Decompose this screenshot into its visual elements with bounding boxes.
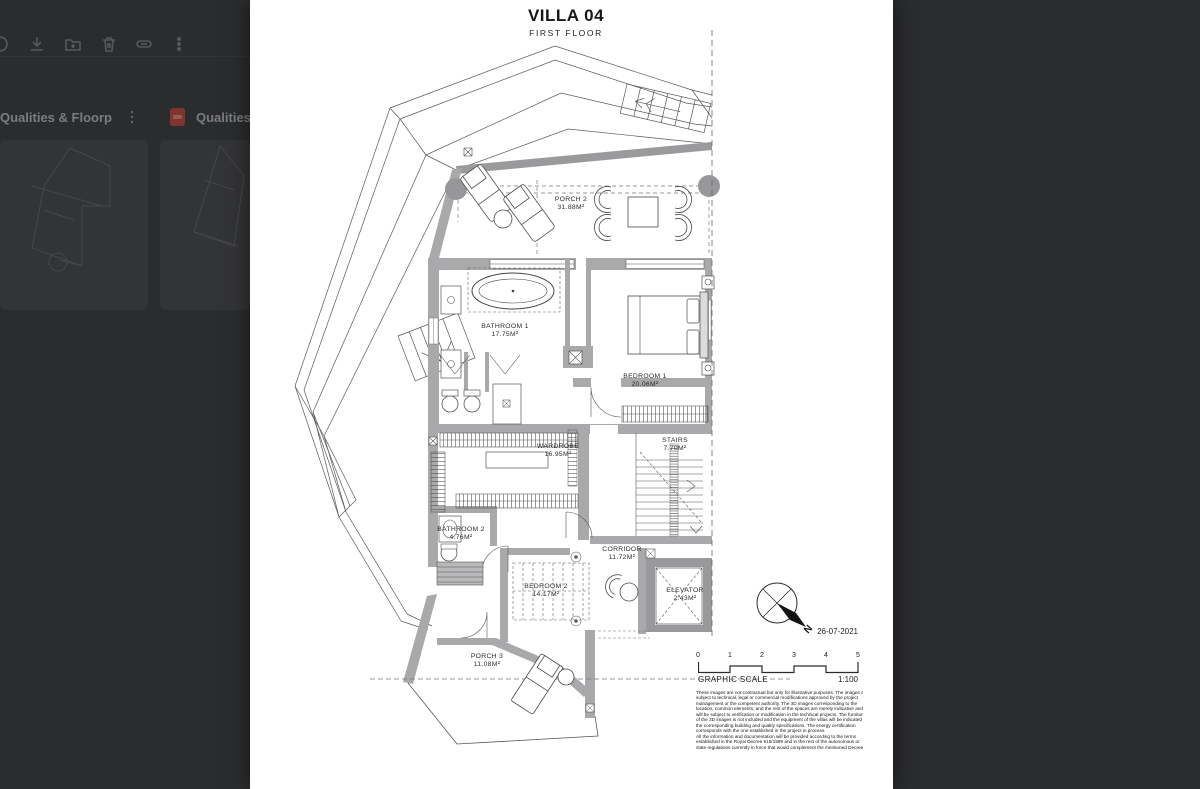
add-to-folder-button[interactable] xyxy=(63,34,83,54)
more-options-button[interactable] xyxy=(169,34,189,54)
room-label-bedroom1: BEDROOM 120.06M² xyxy=(597,373,693,389)
file-card-thumbnail[interactable] xyxy=(0,140,148,310)
download-button[interactable] xyxy=(27,34,47,54)
more-options-icon xyxy=(169,34,189,54)
plan-date: 26-07-2021 xyxy=(698,627,858,636)
scale-bar xyxy=(698,661,859,674)
room-label-corridor: CORRIDOR11.72M² xyxy=(574,546,670,562)
file-card-title[interactable]: Qualities & Floorpla... xyxy=(196,110,250,125)
scale-tick: 4 xyxy=(819,652,833,659)
scale-label: GRAPHIC SCALE xyxy=(698,675,768,684)
room-label-porch2: PORCH 231.88M² xyxy=(523,196,619,212)
room-label-bathroom1: BATHROOM 117.75M² xyxy=(457,323,553,339)
kebab-icon xyxy=(123,108,141,126)
scale-tick: 1 xyxy=(723,652,737,659)
column xyxy=(698,175,720,197)
add-to-folder-icon xyxy=(63,34,83,54)
scale-tick: 0 xyxy=(691,652,705,659)
room-label-porch3: PORCH 311.08M² xyxy=(439,653,535,669)
document-page: VILLA 04 FIRST FLOOR xyxy=(250,0,893,789)
room-label-wardrobe: WARDROBE16.95M² xyxy=(510,443,606,459)
room-label-bathroom2: BATHROOM 24.76M² xyxy=(413,526,509,542)
link-button[interactable] xyxy=(134,34,154,54)
file-card-title[interactable]: Qualities & Floorpla... xyxy=(0,110,112,125)
scale-tick: 5 xyxy=(851,652,865,659)
corridor-furniture xyxy=(602,571,638,601)
pdf-icon xyxy=(170,108,185,126)
file-card-menu-button[interactable] xyxy=(123,108,141,126)
download-icon xyxy=(27,34,47,54)
partial-icon[interactable] xyxy=(0,34,10,54)
scale-ratio: 1:100 xyxy=(838,675,858,684)
graphic-scale: 0 1 2 3 4 5 GRAPHIC SCALE 1:100 xyxy=(698,652,858,686)
trash-icon xyxy=(99,34,119,54)
screen: { "backdrop": { "toolbar": { "icons": ["… xyxy=(0,0,1200,789)
room-label-stairs: STAIRS7.70M² xyxy=(627,437,723,453)
porch2-roof-edge xyxy=(456,142,712,174)
disclaimer-text: These images are not contractual but onl… xyxy=(696,690,863,750)
bedroom1-furniture xyxy=(591,276,714,422)
bathroom1-fixtures xyxy=(440,268,582,424)
room-label-bedroom2: BEDROOM 214.17M² xyxy=(498,583,594,599)
link-icon xyxy=(134,34,154,54)
room-label-elevator: ELEVATOR2.43M² xyxy=(637,587,733,603)
toolbar-divider xyxy=(0,56,250,57)
file-card-thumbnail[interactable] xyxy=(160,140,250,310)
trash-button[interactable] xyxy=(99,34,119,54)
scale-tick: 3 xyxy=(787,652,801,659)
scale-tick: 2 xyxy=(755,652,769,659)
